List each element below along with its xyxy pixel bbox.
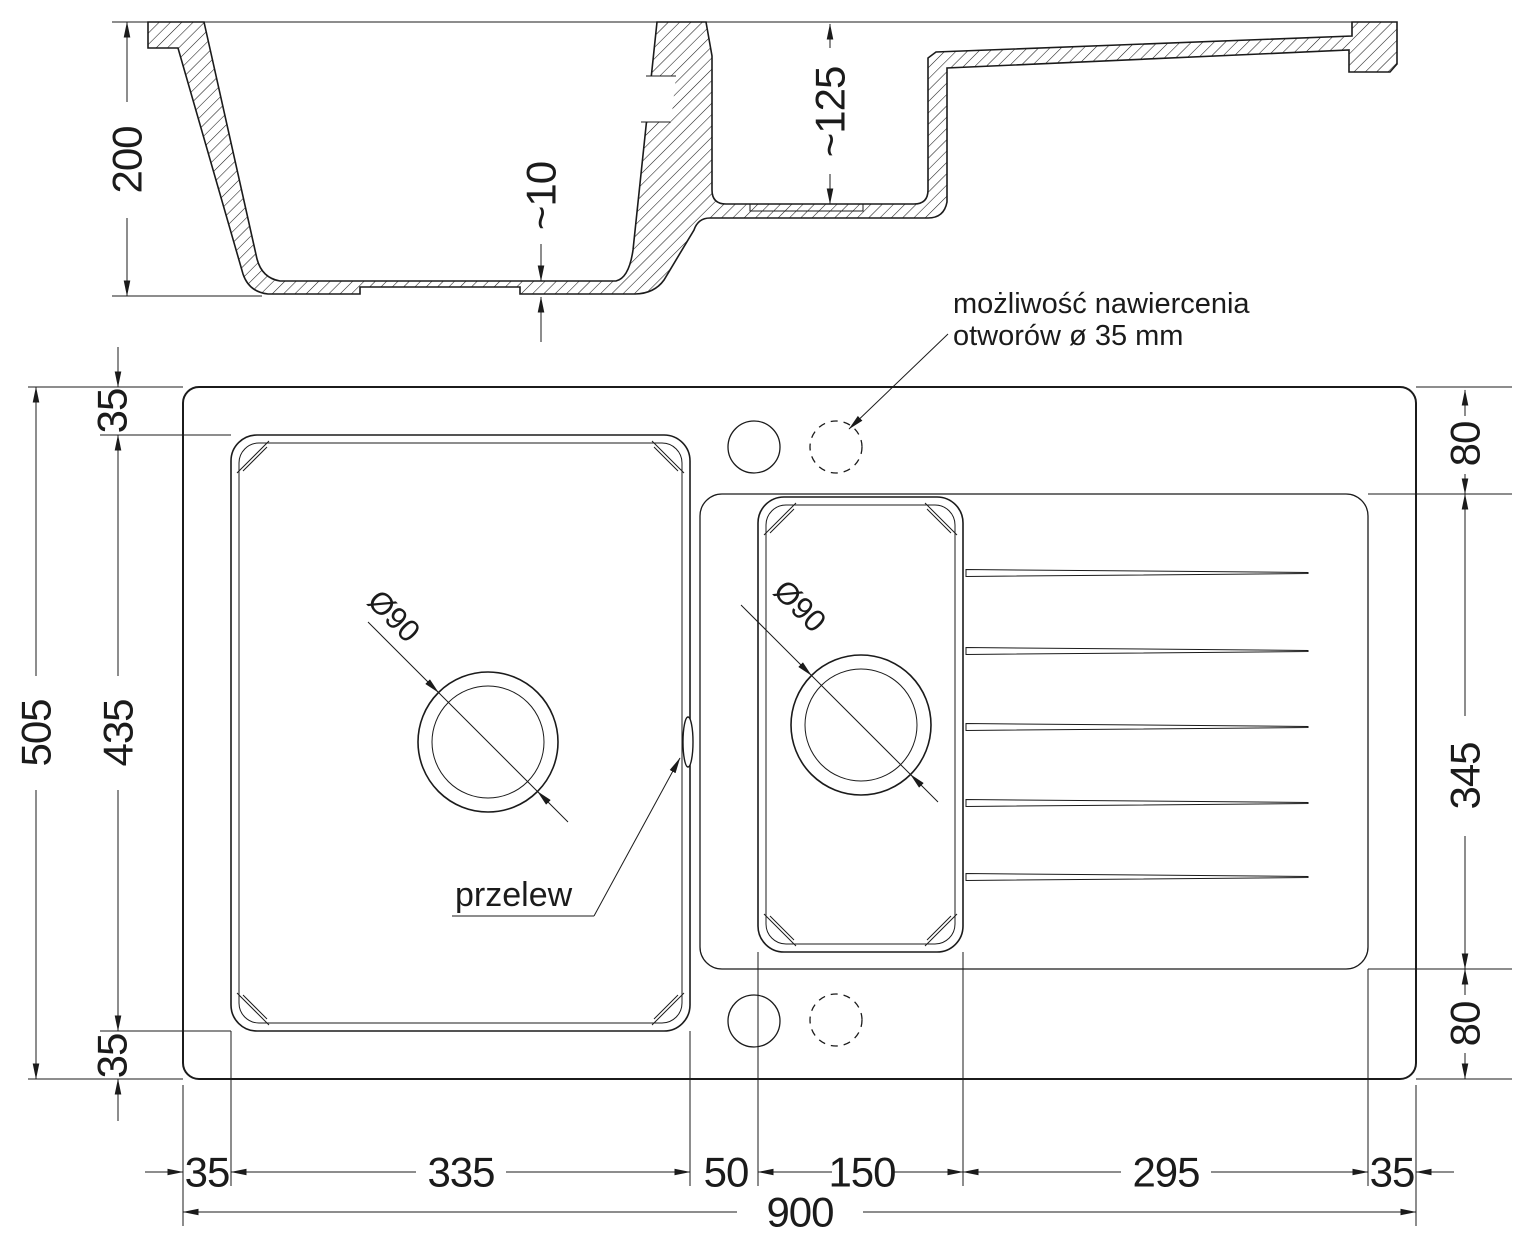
drainer-recess — [700, 494, 1368, 969]
dim-35-bottomleft-label: 35 — [89, 1034, 136, 1079]
half-bowl: Ø90 — [741, 497, 963, 952]
groove — [966, 724, 1308, 731]
overflow-passage — [641, 76, 676, 122]
tap-hole-bottom — [728, 995, 780, 1047]
dim-b35-right-label: 35 — [1370, 1149, 1415, 1196]
technical-drawing-sink: 200 ~10 ~125 — [0, 0, 1534, 1242]
dims-left: 505 35 435 35 — [13, 347, 232, 1121]
drainer-grooves — [966, 570, 1308, 881]
optional-tap-hole-top — [810, 421, 862, 473]
section-material — [148, 22, 1397, 294]
dim-b35-left-label: 35 — [185, 1149, 230, 1196]
dim-900-label: 900 — [766, 1189, 833, 1236]
dim-35-topleft-label: 35 — [89, 389, 136, 434]
drill-note-line1: możliwość nawiercenia — [953, 288, 1250, 320]
overflow-label: przelew — [455, 876, 573, 914]
drawing-canvas: 200 ~10 ~125 — [0, 0, 1534, 1242]
groove — [966, 874, 1308, 881]
dim-80-bottom-label: 80 — [1442, 1002, 1489, 1047]
dim-section-depth-half: ~125 — [807, 24, 854, 204]
dims-right: 80 345 80 — [1368, 387, 1512, 1079]
dim-335-label: 335 — [427, 1149, 494, 1196]
half-drain-diameter-label: Ø90 — [767, 573, 833, 639]
overflow-slot — [683, 717, 693, 767]
groove — [966, 648, 1308, 655]
optional-tap-hole-bottom — [810, 994, 862, 1046]
dim-half-drain: Ø90 — [741, 573, 938, 802]
dim-345-label: 345 — [1442, 742, 1489, 809]
dim-section-bottom-thickness: ~10 — [518, 162, 565, 342]
groove — [966, 800, 1308, 807]
dim-150-label: 150 — [828, 1149, 895, 1196]
dim-295-label: 295 — [1132, 1149, 1199, 1196]
dim-125-label: ~125 — [807, 67, 854, 158]
dim-435-label: 435 — [95, 699, 142, 766]
groove — [966, 570, 1308, 577]
drill-note-leader — [849, 334, 948, 429]
dim-505-label: 505 — [13, 699, 60, 766]
dim-50-label: 50 — [704, 1149, 749, 1196]
drill-note: możliwość nawiercenia otworów ø 35 mm — [849, 288, 1250, 429]
dim-80-top-label: 80 — [1442, 422, 1489, 467]
drill-note-line2: otworów ø 35 mm — [953, 320, 1183, 352]
main-bowl: Ø90 — [231, 435, 693, 1031]
dim-200-label: 200 — [104, 126, 151, 193]
tap-hole-top — [728, 421, 780, 473]
plan-view: Ø90 Ø90 — [13, 288, 1513, 1236]
dim-10-label: ~10 — [518, 162, 565, 230]
